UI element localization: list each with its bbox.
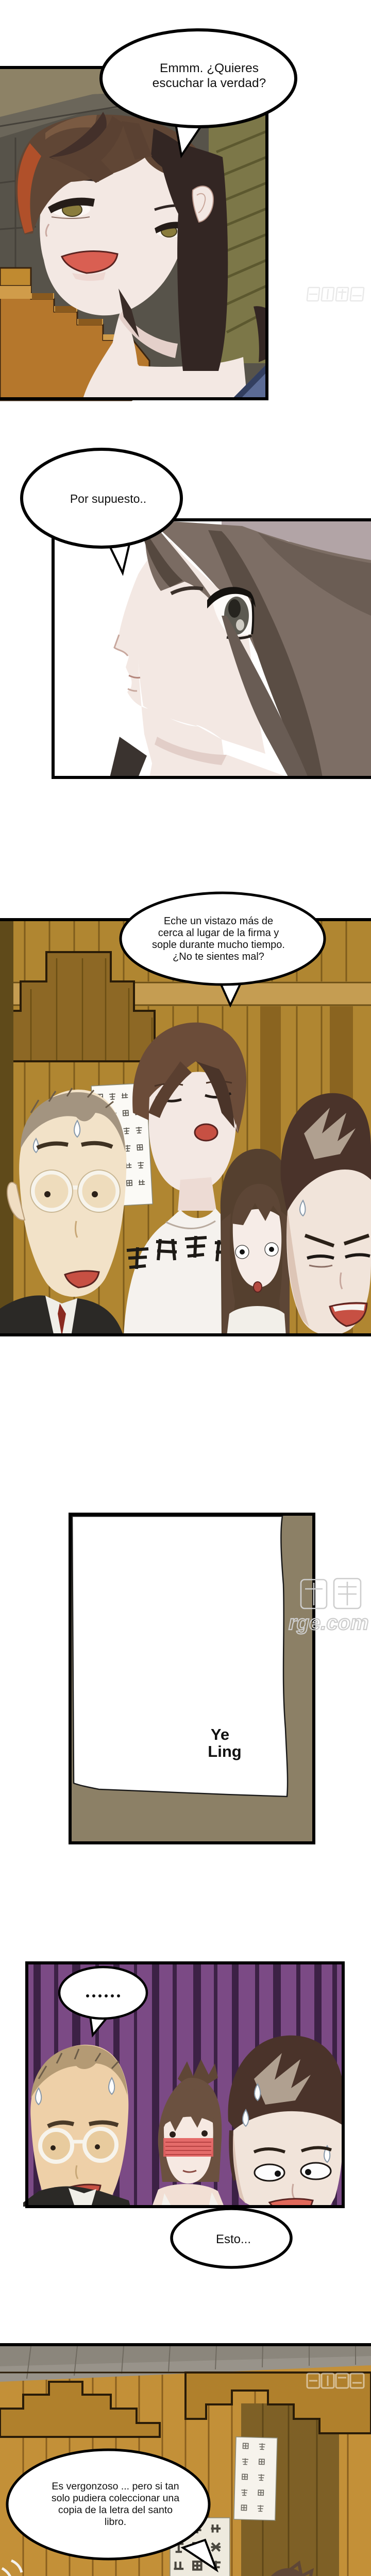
svg-text:libro.: libro. <box>105 2516 126 2528</box>
svg-text:cerca al lugar de la firma y: cerca al lugar de la firma y <box>158 927 279 939</box>
svg-text:¿No te sientes mal?: ¿No te sientes mal? <box>173 951 264 962</box>
svg-text:Ye: Ye <box>211 1725 229 1743</box>
svg-text:rge.com: rge.com <box>289 1612 369 1634</box>
svg-text:escuchar la verdad?: escuchar la verdad? <box>153 76 266 90</box>
svg-text:Emmm. ¿Quieres: Emmm. ¿Quieres <box>160 61 259 75</box>
svg-text:sople durante mucho tiempo.: sople durante mucho tiempo. <box>152 939 285 951</box>
svg-text:Ling: Ling <box>208 1742 241 1760</box>
svg-text:Esto...: Esto... <box>216 2232 251 2246</box>
svg-text:Es vergonzoso ... pero si tan: Es vergonzoso ... pero si tan <box>52 2481 179 2492</box>
svg-text:Eche un vistazo más de: Eche un vistazo más de <box>164 916 273 927</box>
svg-text:Por supuesto..: Por supuesto.. <box>70 492 146 505</box>
svg-text:copia de la letra del santo: copia de la letra del santo <box>58 2504 173 2516</box>
svg-text:solo pudiera coleccionar una: solo pudiera coleccionar una <box>52 2493 179 2504</box>
